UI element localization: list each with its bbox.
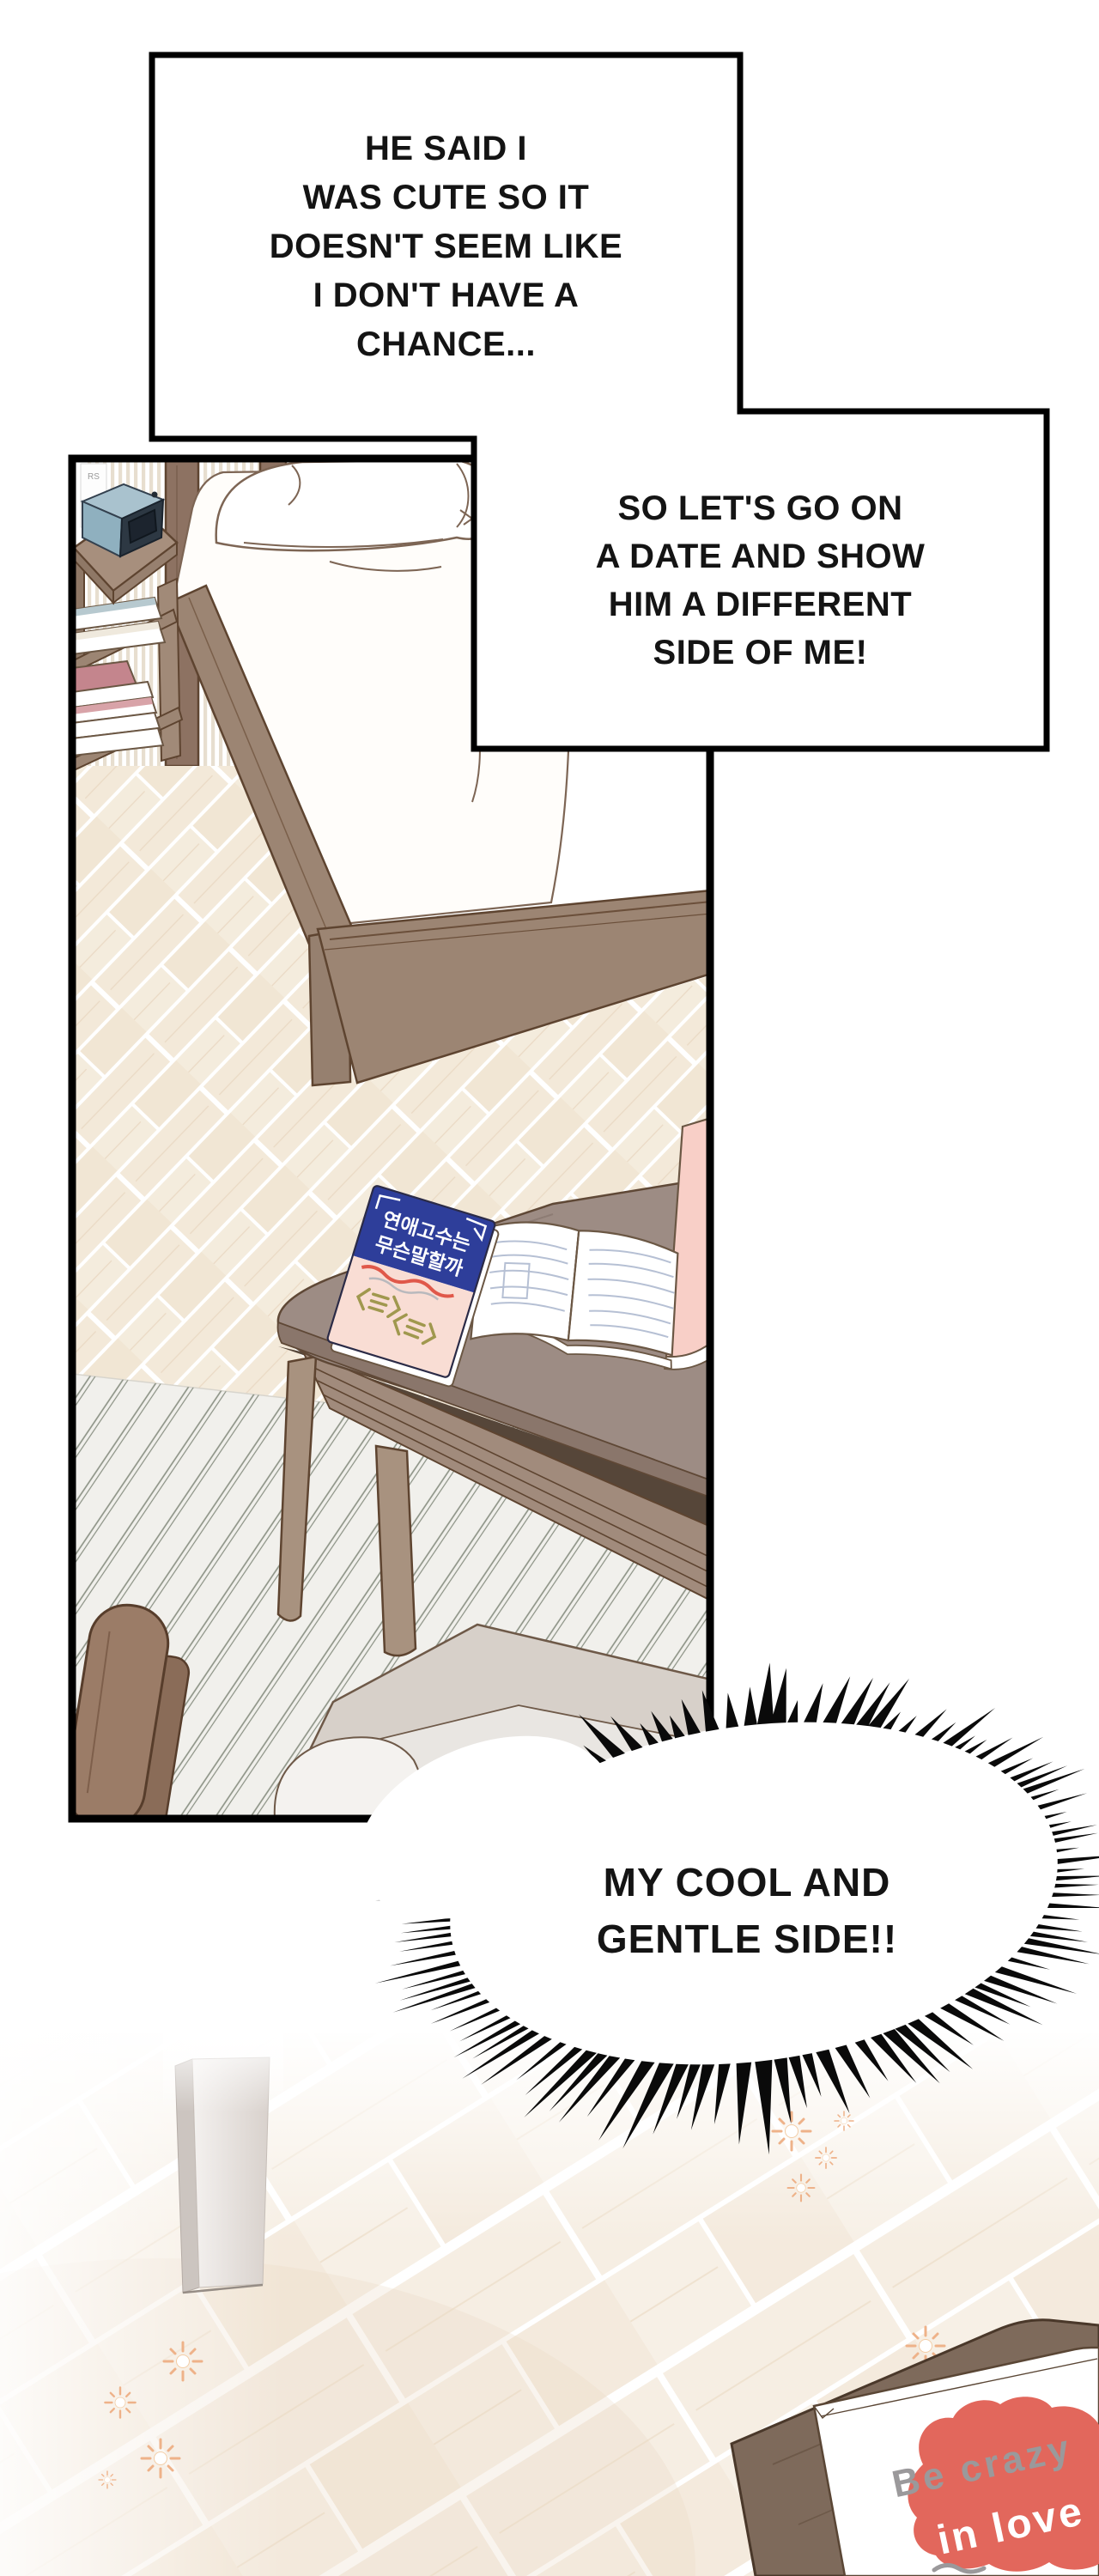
- speaker-knob: [152, 492, 158, 498]
- comic-page: Be crazy in love RS: [0, 0, 1099, 2576]
- bed-pillow: [216, 460, 495, 550]
- nightstand-leg-front: [158, 579, 180, 761]
- leg-top-fade: [163, 2026, 283, 2112]
- scene-svg: Be crazy in love RS: [0, 0, 1099, 2576]
- bottom-scene: Be crazy in love: [0, 2026, 1099, 2576]
- wall-card-label: RS: [88, 472, 100, 482]
